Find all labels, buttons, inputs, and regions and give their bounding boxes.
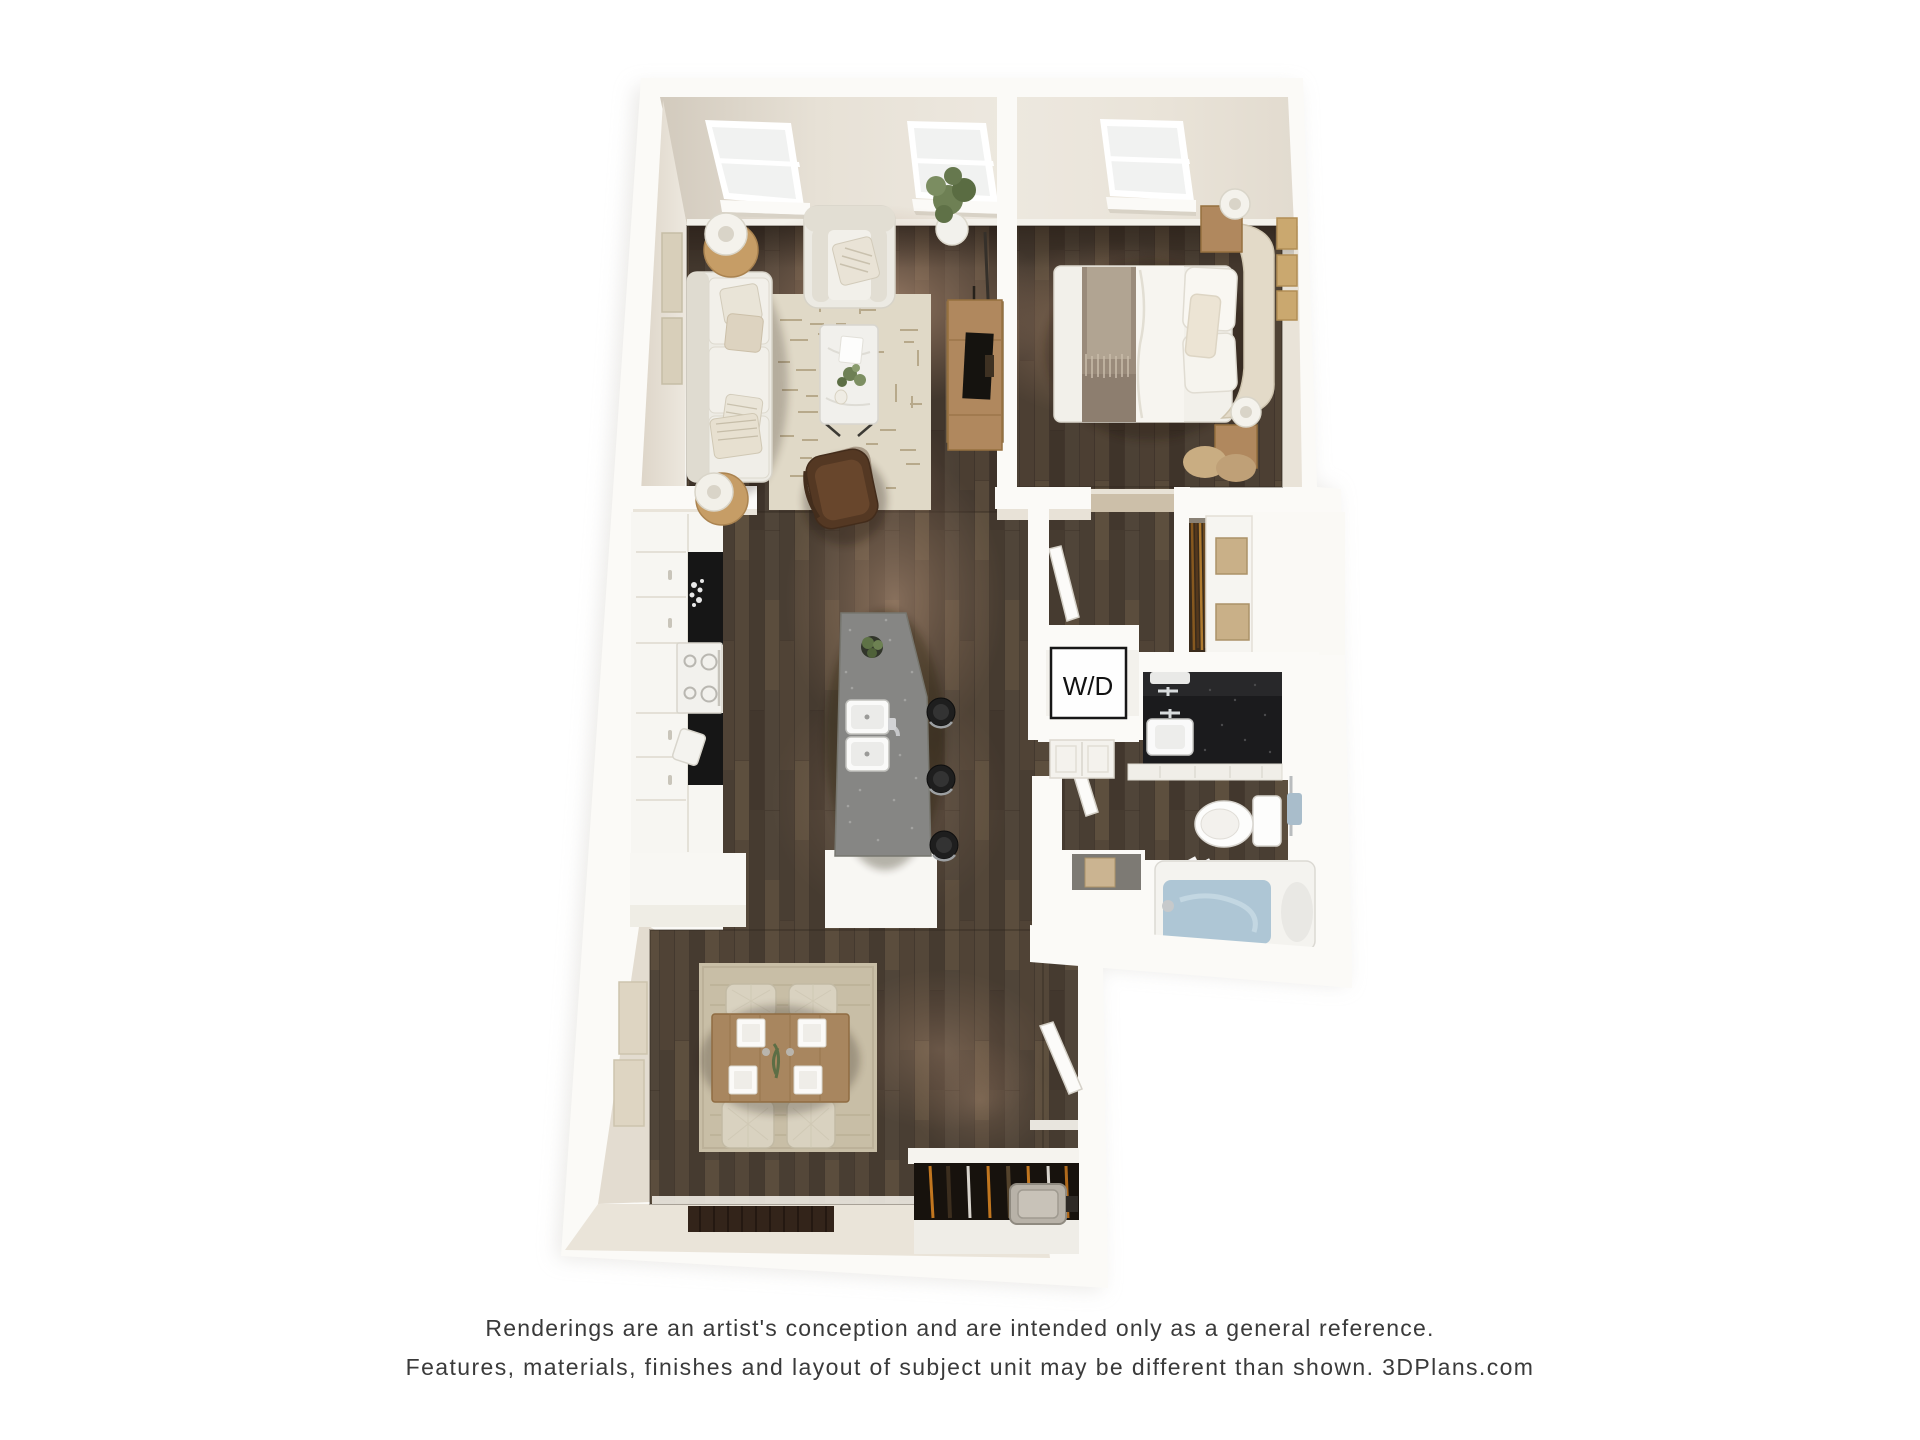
- svg-text:W/D: W/D: [1063, 671, 1114, 701]
- svg-text:Renderings are an artist's con: Renderings are an artist's conception an…: [485, 1315, 1434, 1341]
- svg-text:Features, materials, finishes: Features, materials, finishes and layout…: [406, 1354, 1535, 1380]
